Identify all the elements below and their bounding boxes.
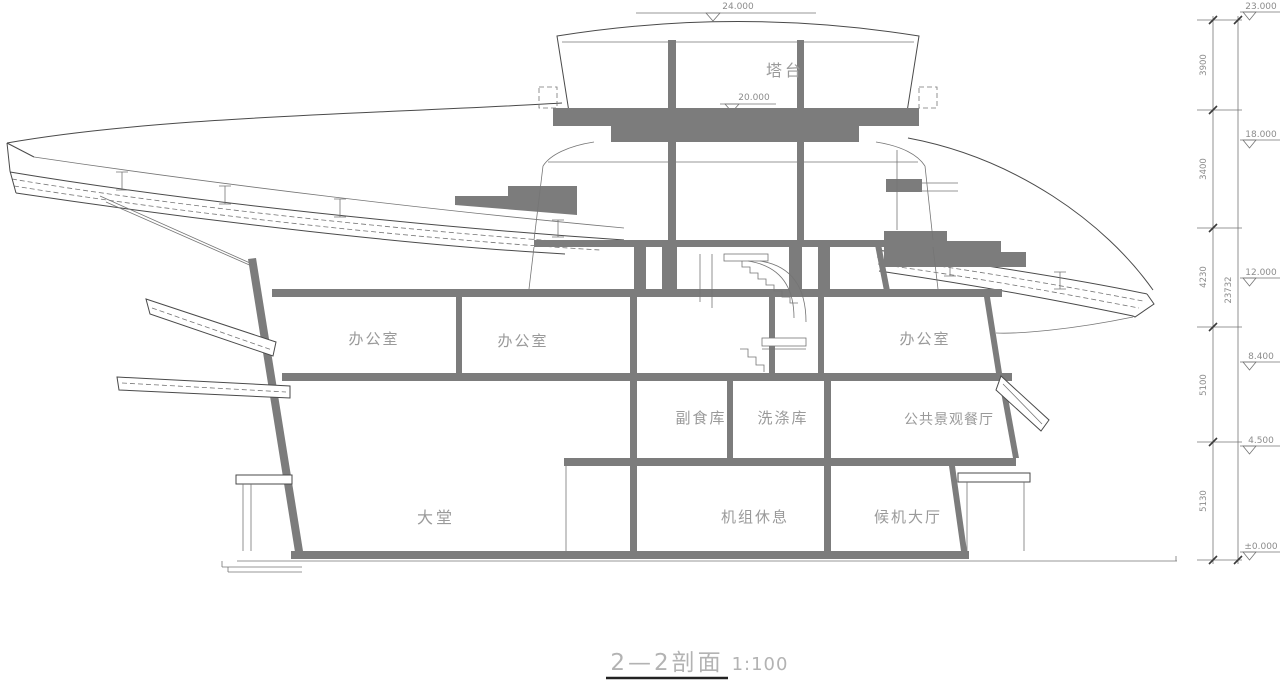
control-tower: 塔台 20.000 24.000 — [539, 2, 937, 112]
elevation-triangle-icon — [1243, 446, 1256, 454]
slab-4500 — [564, 458, 1016, 466]
canopy-left-entrance — [236, 475, 292, 484]
room-label-food-store: 副食库 — [675, 409, 726, 427]
elevation-triangle-icon — [1243, 140, 1256, 148]
outer-wall-right-office — [984, 297, 1002, 373]
ground-slab — [291, 551, 969, 559]
roof-mass-left — [455, 186, 577, 215]
elevation-marker: 18.000 — [1240, 130, 1280, 148]
elevation-marker: 4.500 — [1240, 436, 1280, 454]
canopy-right-entrance — [958, 473, 1030, 482]
roof-mass-right — [884, 231, 1026, 267]
elevation-triangle-icon — [1243, 278, 1256, 286]
elevation-triangle-icon — [706, 13, 720, 21]
room-label-lobby: 大堂 — [417, 508, 455, 527]
room-label-office-left: 办公室 — [348, 330, 399, 348]
core-wall — [668, 142, 676, 240]
svg-text:23.000: 23.000 — [1245, 2, 1277, 12]
room-label-office-right: 办公室 — [899, 330, 950, 348]
room-labels: 办公室 办公室 办公室 副食库 洗涤库 公共景观餐厅 大堂 机组休息 候机大厅 — [348, 330, 994, 527]
right-dimension-chain: 3900 3400 4230 5100 5130 23732 — [1197, 16, 1242, 564]
room-label-waiting-hall: 候机大厅 — [874, 508, 942, 526]
drawing-title: 2—2剖面 — [610, 650, 723, 676]
drawing-scale: 1:100 — [732, 654, 789, 675]
room-label-restaurant: 公共景观餐厅 — [904, 412, 994, 428]
elevation-value: 24.000 — [722, 2, 754, 12]
tower-base-slab — [543, 108, 925, 166]
elevation-triangle-icon — [1243, 552, 1256, 560]
dim-segment: 5100 — [1199, 374, 1209, 396]
elevation-triangle-icon — [1243, 12, 1256, 20]
slab-8400 — [282, 373, 1012, 381]
elevation-value: 20.000 — [738, 93, 770, 103]
elevation-marker-24: 24.000 — [636, 2, 816, 21]
entry-steps — [222, 561, 302, 572]
svg-text:4.500: 4.500 — [1248, 436, 1274, 446]
section-drawing: 塔台 20.000 24.000 — [0, 0, 1280, 686]
left-wing-roof — [7, 103, 624, 267]
svg-text:±0.000: ±0.000 — [1244, 542, 1278, 552]
dim-segment: 4230 — [1199, 266, 1209, 288]
slab-12000 — [272, 289, 1002, 297]
room-label-crew-rest: 机组休息 — [721, 508, 789, 526]
elevation-marker: 8.400 — [1240, 352, 1280, 370]
dim-segment: 3900 — [1199, 54, 1209, 76]
right-elevation-markers: 23.000 18.000 12.000 8.400 4.500 ±0.000 — [1240, 2, 1280, 560]
roof-ledge-right — [886, 179, 922, 192]
right-wing-roof — [877, 138, 1154, 333]
upper-block — [529, 142, 938, 289]
room-label-office-center: 办公室 — [497, 332, 548, 350]
dim-segment: 5130 — [1199, 490, 1209, 512]
elevation-marker: 12.000 — [1240, 268, 1280, 286]
title-block: 2—2剖面 1:100 — [606, 650, 788, 678]
core-wall — [797, 142, 804, 240]
tower-label: 塔台 — [766, 61, 804, 80]
svg-text:18.000: 18.000 — [1245, 130, 1277, 140]
elevation-triangle-icon — [1243, 362, 1256, 370]
dim-segment: 3400 — [1199, 158, 1209, 180]
floor-slab — [534, 240, 934, 247]
elevation-marker: 23.000 — [1240, 2, 1280, 20]
svg-text:12.000: 12.000 — [1245, 268, 1277, 278]
svg-text:8.400: 8.400 — [1248, 352, 1274, 362]
elevation-marker: ±0.000 — [1240, 542, 1280, 560]
outer-wall-left — [248, 258, 303, 552]
room-label-laundry-store: 洗涤库 — [757, 409, 808, 427]
drawing-canvas: 塔台 20.000 24.000 — [0, 0, 1280, 686]
dim-total: 23732 — [1224, 276, 1234, 303]
tower-core-wall — [668, 40, 676, 108]
